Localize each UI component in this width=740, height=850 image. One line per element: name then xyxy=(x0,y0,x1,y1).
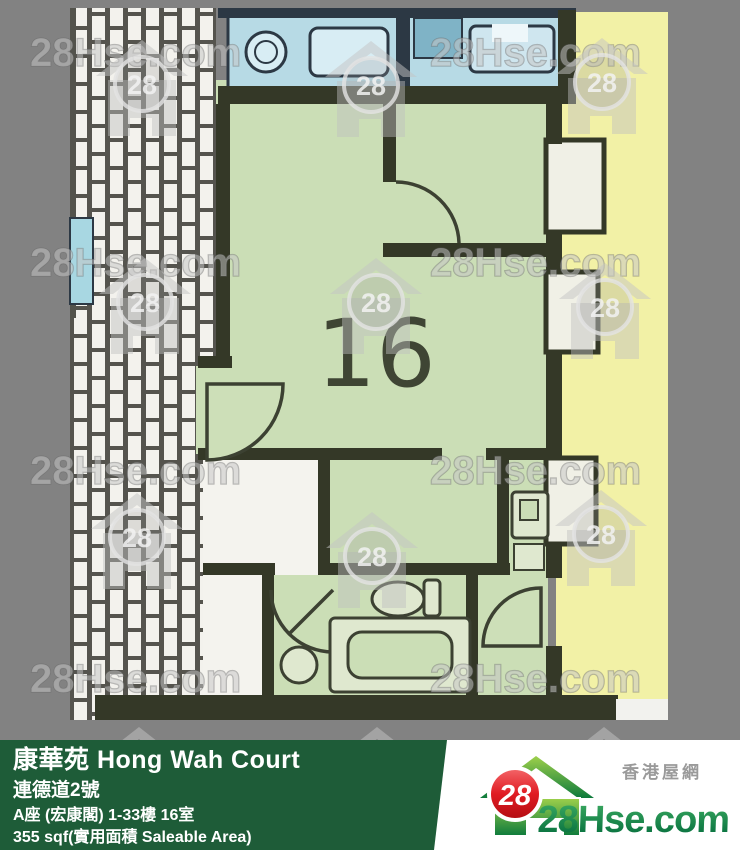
site-logo-number: 28 xyxy=(498,780,532,812)
street-address: 連德道2號 xyxy=(13,779,447,803)
block-floor-flat: A座 (宏康閣) 1-33樓 16室 xyxy=(13,806,447,826)
watermark-text: 28Hse.com xyxy=(30,657,241,701)
watermark-text: 28Hse.com xyxy=(430,449,641,493)
watermark-text: 28Hse.com xyxy=(430,657,641,701)
property-info-panel: 康華苑 Hong Wah Court 連德道2號 A座 (宏康閣) 1-33樓 … xyxy=(0,740,447,850)
site-tagline: 香港屋網 xyxy=(622,758,702,783)
saleable-area: 355 sqf(實用面積 Saleable Area) xyxy=(13,828,447,848)
building-name: 康華苑 Hong Wah Court xyxy=(13,745,447,775)
site-logo-name: 28Hse.com xyxy=(537,799,730,841)
watermark-text: 28Hse.com xyxy=(30,449,241,493)
floor-plan: 28 xyxy=(0,0,740,740)
floor-plan-flyer: 28 xyxy=(0,0,740,850)
